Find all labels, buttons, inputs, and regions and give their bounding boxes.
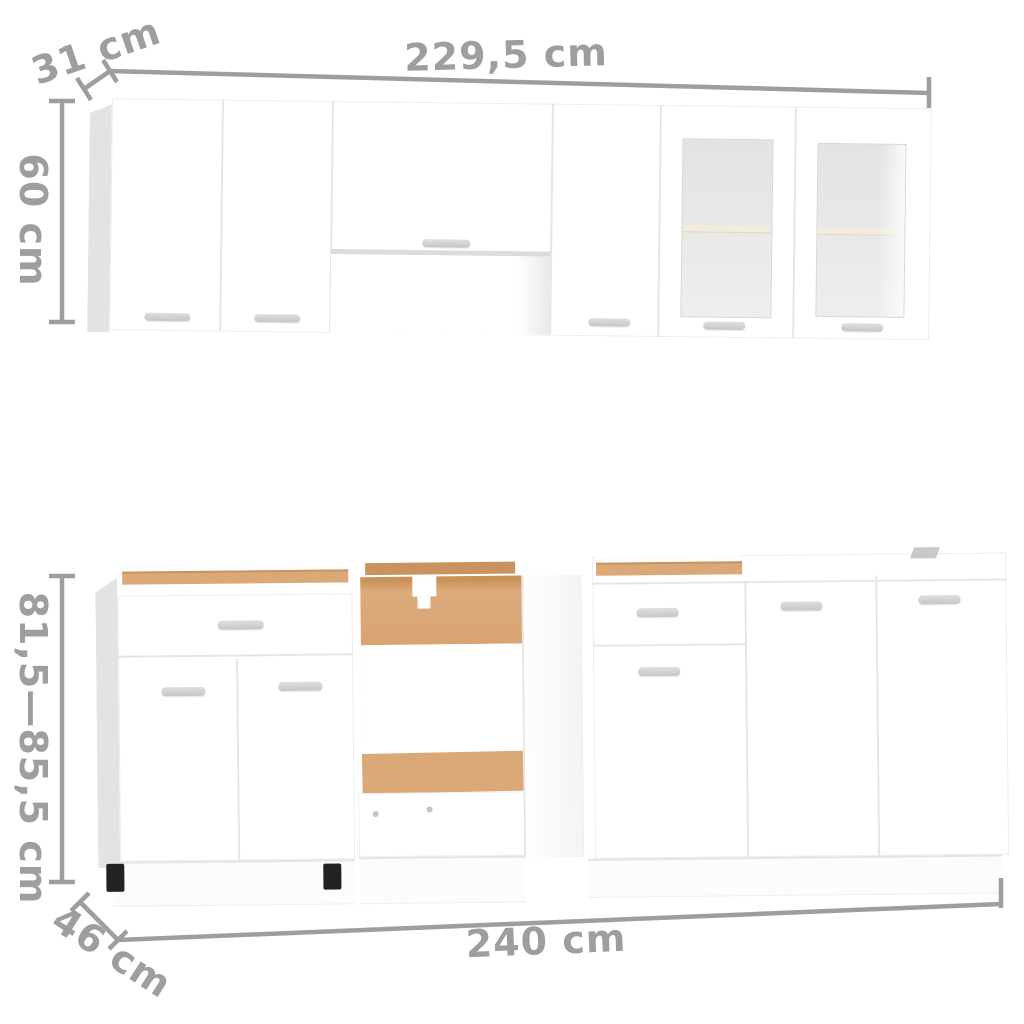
product-diagram: 31 cm 229,5 cm 60 cm 81,5—85,5 cm 46 cm … bbox=[0, 0, 1024, 1024]
dimension-line-base-width bbox=[118, 878, 1001, 940]
dimension-line-wall-width bbox=[110, 71, 929, 108]
dimension-lines-overlay bbox=[0, 0, 1024, 1024]
dimension-line-wall-height bbox=[49, 101, 75, 322]
dimension-line-wall-depth bbox=[77, 60, 117, 100]
dimension-line-base-height bbox=[49, 576, 75, 882]
